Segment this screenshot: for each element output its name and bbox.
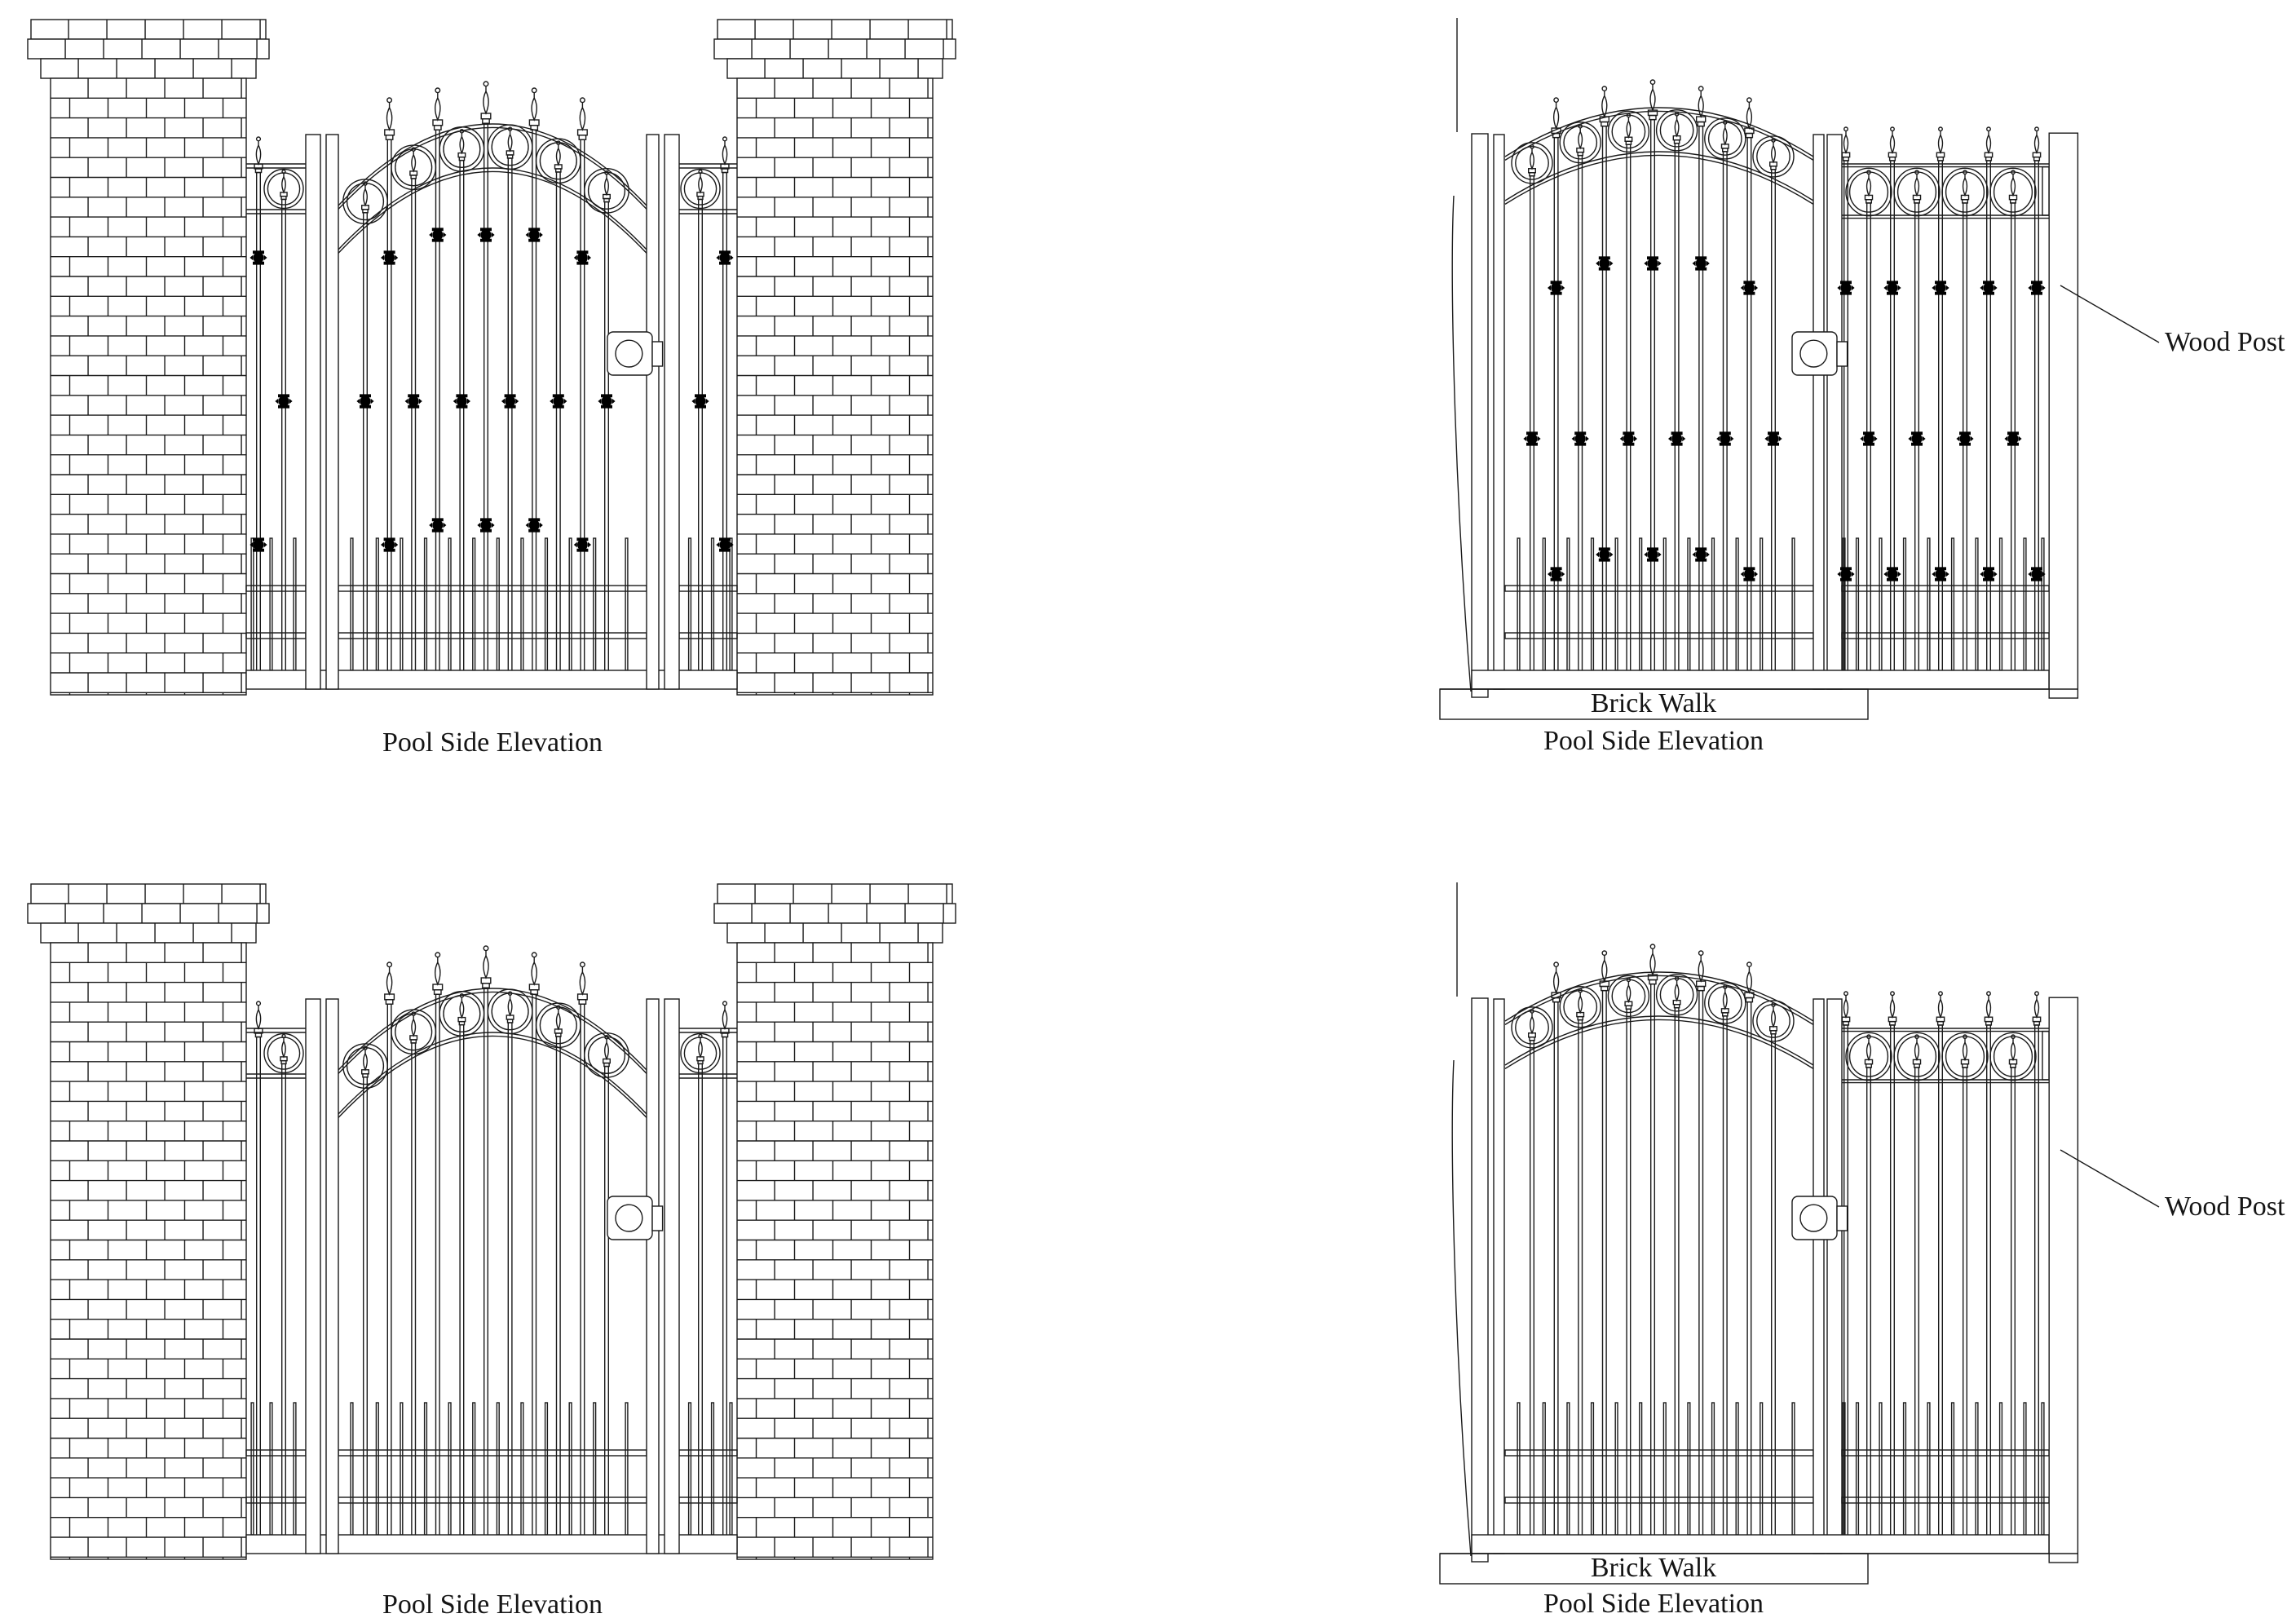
spear-finial-icon	[481, 946, 491, 988]
caption-bottom-left: Pool Side Elevation	[382, 1589, 603, 1618]
brick-pillar	[28, 20, 269, 695]
spear-finial-icon	[433, 88, 443, 130]
gate-leaf	[1505, 944, 1813, 1536]
spear-finial-icon	[529, 953, 539, 994]
spear-finial-icon	[433, 953, 443, 994]
spear-finial-icon	[1913, 170, 1920, 203]
spear-finial-icon	[1625, 978, 1632, 1009]
spear-finial-icon	[458, 130, 466, 161]
spear-finial-icon	[506, 992, 514, 1023]
spear-finial-icon	[1649, 944, 1658, 984]
spear-finial-icon	[481, 82, 491, 123]
knuckle-collars	[249, 228, 733, 551]
gate-frame-posts	[306, 999, 679, 1554]
elevation-bottom-left-masonry	[28, 884, 956, 1559]
spear-finial-icon	[1673, 113, 1680, 144]
spear-finial-icon	[1842, 127, 1849, 161]
elevation-drawing-canvas: Pool Side Elevation Brick Walk Pool Side…	[0, 0, 2296, 1618]
spear-finial-icon	[506, 127, 514, 158]
spear-finial-icon	[555, 141, 563, 172]
latch-posts	[1813, 999, 1842, 1554]
spear-finial-icon	[1600, 86, 1609, 126]
gate-leaf	[338, 82, 647, 672]
spear-finial-icon	[1936, 127, 1944, 161]
label-brick-walk-top: Brick Walk	[1591, 688, 1716, 718]
spear-finial-icon	[721, 137, 729, 173]
brick-pillar	[714, 884, 956, 1559]
spear-finial-icon	[697, 1035, 704, 1064]
spear-finial-icon	[254, 1001, 263, 1037]
spear-finial-icon	[578, 98, 588, 139]
spear-finial-icon	[1529, 1010, 1536, 1041]
wall-break-line	[1452, 882, 1471, 1556]
spear-finial-icon	[362, 1046, 369, 1077]
spear-finial-icon	[721, 1001, 729, 1037]
spear-finial-icon	[1913, 1035, 1920, 1068]
spear-finial-icon	[1745, 962, 1754, 1002]
spear-finial-icon	[1865, 170, 1872, 203]
spear-finial-icon	[1961, 170, 1968, 203]
side-panel	[246, 1001, 306, 1536]
spear-finial-icon	[1625, 113, 1632, 144]
spear-finial-icon	[697, 170, 704, 200]
spear-finial-icon	[1961, 1035, 1968, 1068]
spear-finial-icon	[1577, 989, 1584, 1020]
spear-finial-icon	[578, 962, 588, 1004]
wall-break-line	[1452, 18, 1471, 692]
spear-finial-icon	[385, 962, 395, 1004]
side-panel	[246, 137, 306, 672]
drawing-sheet: Pool Side Elevation Brick Walk Pool Side…	[0, 0, 2296, 1618]
wood-post	[2049, 997, 2077, 1563]
label-wood-post-top: Wood Post	[2165, 327, 2285, 357]
spear-finial-icon	[1985, 127, 1992, 161]
spear-finial-icon	[1770, 1003, 1777, 1034]
fixed-panel	[1842, 127, 2049, 672]
label-brick-walk-bottom: Brick Walk	[1591, 1553, 1716, 1583]
spear-finial-icon	[555, 1006, 563, 1037]
spear-finial-icon	[2033, 992, 2040, 1025]
spear-finial-icon	[2009, 1035, 2016, 1068]
spear-finial-icon	[1673, 977, 1680, 1008]
spear-finial-icon	[362, 182, 369, 213]
hinge-posts	[1472, 134, 1504, 697]
caption-top-left: Pool Side Elevation	[382, 727, 603, 758]
elevation-top-right-wood-post	[1440, 18, 2159, 719]
gate-leaf	[1505, 80, 1813, 672]
spear-finial-icon	[385, 98, 395, 139]
spear-finial-icon	[1529, 145, 1536, 176]
label-wood-post-bottom: Wood Post	[2165, 1191, 2285, 1222]
spear-finial-icon	[603, 1036, 611, 1067]
spear-finial-icon	[1936, 992, 1944, 1025]
spear-finial-icon	[1888, 992, 1896, 1025]
elevation-bottom-right-wood-post	[1440, 882, 2159, 1584]
spear-finial-icon	[1722, 985, 1729, 1016]
spear-finial-icon	[1577, 125, 1584, 156]
caption-top-right: Pool Side Elevation	[1543, 726, 1764, 756]
spear-finial-icon	[2009, 170, 2016, 203]
spear-finial-icon	[280, 1035, 287, 1064]
spear-finial-icon	[1697, 86, 1706, 126]
wood-post	[2049, 133, 2077, 698]
spear-finial-icon	[1722, 121, 1729, 152]
spear-finial-icon	[529, 88, 539, 130]
side-panel	[679, 137, 737, 672]
side-panel	[679, 1001, 737, 1536]
hinge-posts	[1472, 998, 1504, 1562]
spear-finial-icon	[1770, 139, 1777, 170]
gate-leaf	[338, 946, 647, 1536]
spear-finial-icon	[254, 137, 263, 173]
spear-finial-icon	[410, 148, 417, 179]
elevation-top-left-masonry	[28, 20, 956, 695]
latch-posts	[1813, 135, 1842, 689]
spear-finial-icon	[1649, 80, 1658, 120]
spear-finial-icon	[2033, 127, 2040, 161]
spear-finial-icon	[1697, 951, 1706, 991]
spear-finial-icon	[280, 170, 287, 200]
spear-finial-icon	[1600, 951, 1609, 991]
spear-finial-icon	[1985, 992, 1992, 1025]
spear-finial-icon	[1842, 992, 1849, 1025]
spear-finial-icon	[1888, 127, 1896, 161]
gate-frame-posts	[306, 135, 679, 689]
caption-bottom-right: Pool Side Elevation	[1543, 1589, 1764, 1618]
spear-finial-icon	[1865, 1035, 1872, 1068]
brick-pillar	[714, 20, 956, 695]
spear-finial-icon	[1745, 98, 1754, 138]
brick-pillar	[28, 884, 269, 1559]
fixed-panel	[1842, 992, 2049, 1536]
spear-finial-icon	[410, 1012, 417, 1043]
spear-finial-icon	[603, 171, 611, 202]
spear-finial-icon	[458, 994, 466, 1025]
